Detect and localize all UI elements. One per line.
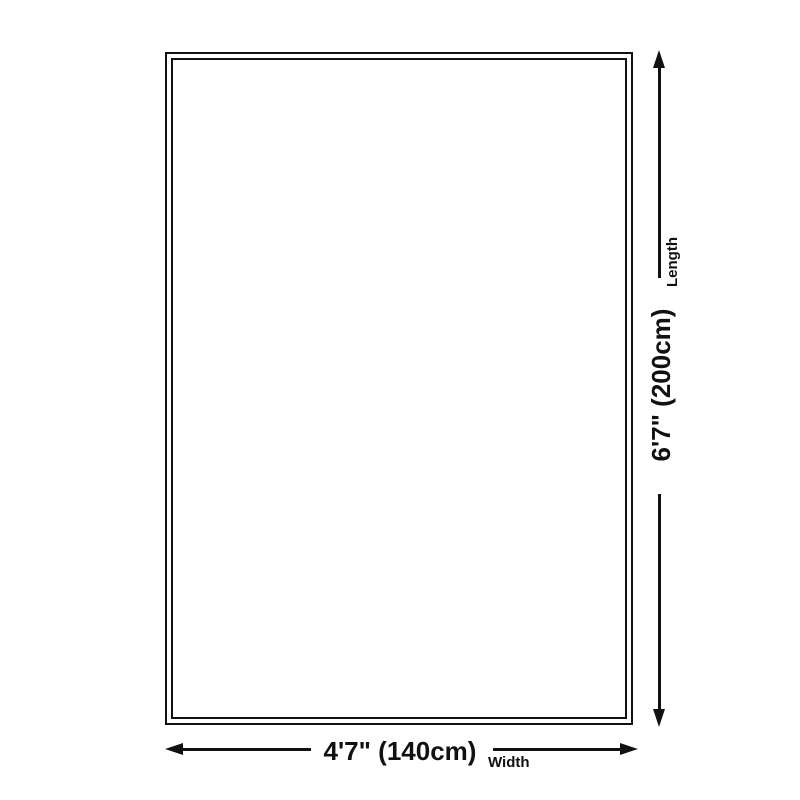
dimension-diagram: 4'7" (140cm) Width 6'7" (200cm) Length: [0, 0, 800, 800]
arrow-up-icon: [653, 50, 665, 68]
dimension-line: [658, 494, 661, 712]
arrow-right-icon: [620, 743, 638, 755]
dimension-line: [658, 66, 661, 278]
width-dimension: 4'7" (140cm) Width: [165, 737, 638, 781]
width-value: 4'7" (140cm): [300, 737, 500, 765]
product-outline-outer: [165, 52, 633, 725]
width-label: Width: [488, 755, 530, 771]
product-outline-inner: [171, 58, 627, 719]
length-dimension: 6'7" (200cm) Length: [647, 50, 691, 727]
dimension-line: [493, 748, 620, 751]
dimension-line: [180, 748, 311, 751]
length-value: 6'7" (200cm): [647, 285, 675, 485]
length-label: Length: [665, 237, 681, 287]
